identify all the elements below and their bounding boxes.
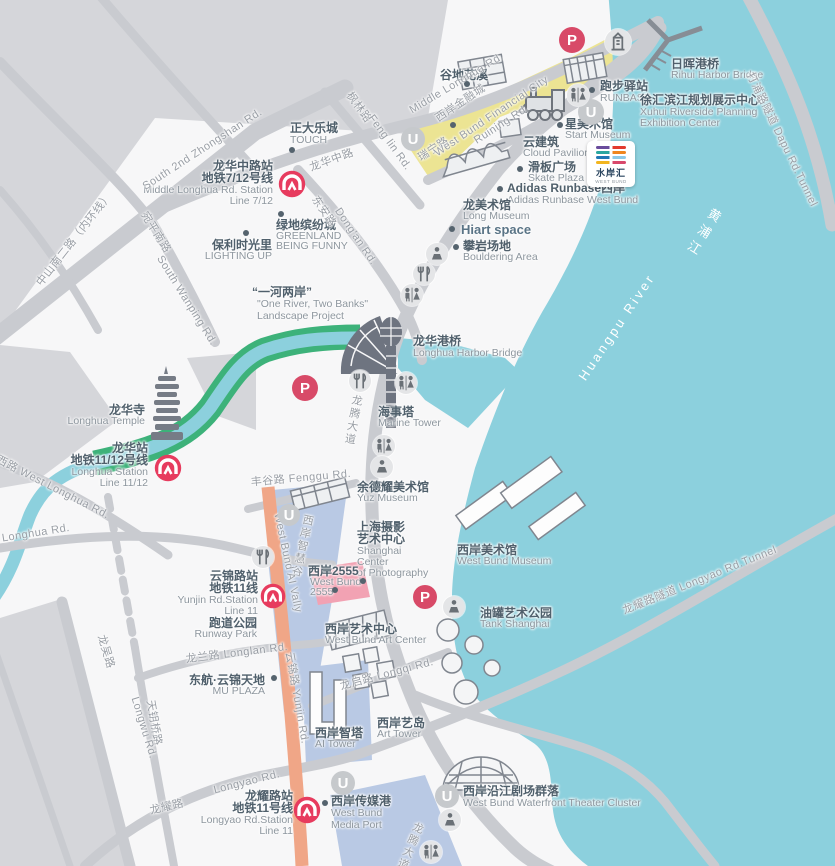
station-longyao-cn2: 地铁11号线 — [232, 802, 293, 815]
underpass-icon: U — [401, 127, 425, 151]
dot-icon — [453, 244, 459, 250]
underpass-icon: U — [435, 784, 459, 808]
poi-oneriver-en2: Landscape Project — [257, 311, 344, 322]
restroom-icon — [395, 372, 417, 394]
restaurant-icon — [349, 370, 371, 392]
viewpoint-icon — [439, 809, 461, 831]
restaurant-icon — [252, 546, 274, 568]
underpass-icon: U — [278, 504, 300, 526]
dot-icon — [271, 675, 277, 681]
dot-icon — [497, 186, 503, 192]
poi-scop-en3: of Photography — [357, 568, 428, 579]
poi-2555-en2: 2555 — [310, 587, 333, 598]
station-longhua-en2: Line 11/12 — [100, 478, 148, 489]
poi-hiart: Hiart space — [461, 223, 531, 237]
restroom-icon — [420, 841, 442, 863]
viewpoint-icon — [426, 243, 448, 265]
dot-icon — [243, 230, 249, 236]
dot-icon — [464, 81, 470, 87]
poi-aitower-en: AI Tower — [315, 739, 356, 750]
poi-exhibition-en2: Exhibition Center — [640, 118, 720, 129]
restroom-icon — [401, 284, 423, 306]
poi-touch-en: TOUCH — [290, 135, 327, 146]
poi-touch-cn: 正大乐城 — [290, 122, 338, 135]
poi-mu-en: MU PLAZA — [212, 686, 265, 697]
poi-runway-en: Runway Park — [195, 629, 257, 640]
poi-longmuseum-en: Long Museum — [463, 211, 530, 222]
logo-color-bars — [587, 141, 635, 166]
poi-temple-en: Longhua Temple — [68, 416, 145, 427]
west-bund-logo-badge: 水岸汇 WEST BUND — [587, 141, 635, 187]
parking-icon: P — [559, 27, 585, 53]
restaurant-icon — [413, 263, 435, 285]
west-bund-map[interactable]: 龙华中路站地铁7/12号线Middle Longhua Rd. StationL… — [0, 0, 835, 866]
viewpoint-icon — [443, 596, 465, 618]
parking-icon: P — [292, 375, 318, 401]
poi-bouldering-en: Bouldering Area — [463, 252, 538, 263]
pagoda-icon — [151, 366, 183, 440]
dot-icon — [589, 87, 595, 93]
poi-greenland-en2: BEING FUNNY — [276, 241, 348, 252]
underpass-icon: U — [331, 771, 355, 795]
poi-yuz-en: Yuz Museum — [357, 493, 418, 504]
poi-mediaport-en1: West Bund — [331, 808, 382, 819]
poi-wbmuseum-en: West Bund Museum — [457, 556, 551, 567]
poi-oneriver-en1: "One River, Two Banks" — [257, 299, 368, 310]
station-middle-longhua-en2: Line 7/12 — [230, 196, 273, 207]
metro-icon — [154, 454, 182, 482]
poi-poly-en: LIGHTING UP — [205, 251, 272, 262]
poi-artcenter-en: West Bund Art Center — [325, 635, 426, 646]
station-longyao-en2: Line 11 — [259, 826, 293, 837]
dot-icon — [278, 211, 284, 217]
station-yunjin-cn2: 地铁11线 — [209, 582, 258, 595]
poi-cloud-en: Cloud Pavilion — [523, 148, 590, 159]
poi-longhua-bridge-en: Longhua Harbor Bridge — [413, 348, 522, 359]
poi-longhua-bridge-cn: 龙华港桥 — [413, 335, 461, 348]
dot-icon — [517, 166, 523, 172]
dot-icon — [332, 587, 338, 593]
poi-mediaport-en2: Media Port — [331, 820, 382, 831]
dot-icon — [557, 122, 563, 128]
dot-icon — [289, 147, 295, 153]
poi-theater-en: West Bund Waterfront Theater Cluster — [463, 798, 641, 809]
poi-marine-en: Marine Tower — [378, 418, 441, 429]
dot-icon — [450, 122, 456, 128]
poi-tank-en: Tank Shanghai — [480, 619, 549, 630]
station-longhua-cn2: 地铁11/12号线 — [71, 454, 148, 467]
dot-icon — [449, 226, 455, 232]
poi-start-en: Start Museum — [565, 130, 630, 141]
viewpoint-icon — [371, 456, 393, 478]
station-middle-longhua-cn2: 地铁7/12号线 — [202, 172, 273, 185]
poi-arttower-en: Art Tower — [377, 729, 421, 740]
dot-icon — [360, 578, 366, 584]
poi-oneriver-cn: “一河两岸” — [252, 286, 312, 299]
metro-icon — [278, 170, 306, 198]
poi-scop-cn2: 艺术中心 — [357, 533, 405, 546]
buildingicon-icon — [605, 29, 631, 55]
metro-icon — [293, 796, 321, 824]
logo-en: WEST BUND — [587, 179, 635, 184]
logo-cn: 水岸汇 — [587, 166, 635, 179]
poi-adidas-en: Adidas Runbase West Bund — [507, 195, 638, 206]
dot-icon — [322, 800, 328, 806]
metro-icon — [260, 583, 286, 609]
poi-runbase-cn: 跑步驿站 — [600, 80, 648, 93]
poi-theater-cn: 西岸沿江剧场群落 — [463, 785, 559, 798]
poi-exhibition-cn: 徐汇滨江规划展示中心 — [640, 94, 760, 107]
poi-mediaport-cn: 西岸传媒港 — [331, 795, 391, 808]
restroom-icon — [567, 84, 589, 106]
restroom-icon — [373, 435, 395, 457]
parking-icon: P — [413, 585, 437, 609]
